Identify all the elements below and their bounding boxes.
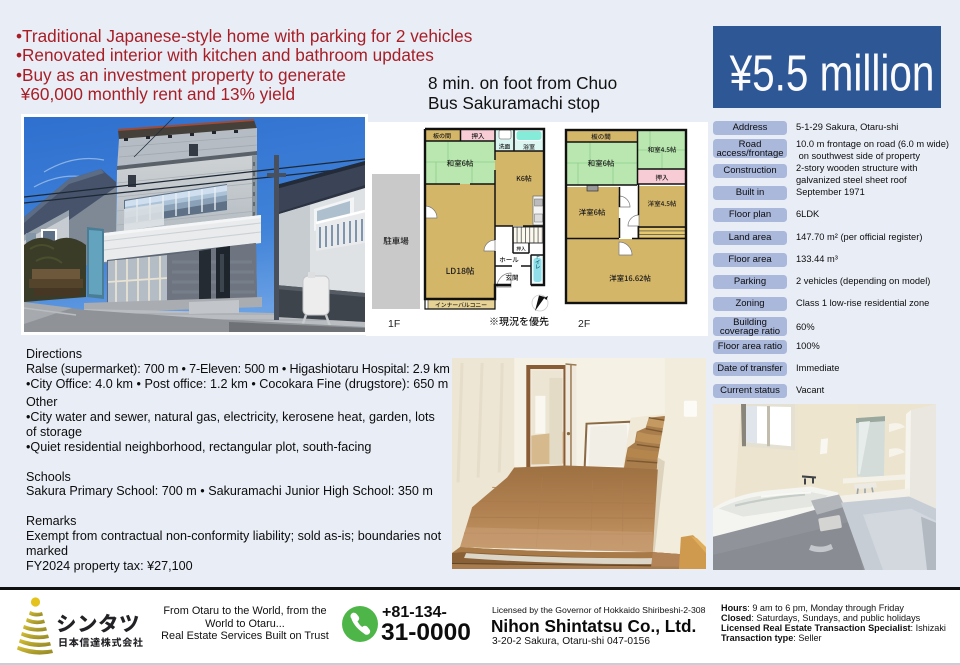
- svg-text:板の間: 板の間: [591, 131, 611, 141]
- svg-text:押入: 押入: [472, 131, 486, 141]
- svg-text:※現況を優先: ※現況を優先: [489, 313, 549, 328]
- svg-text:玄関: 玄関: [506, 272, 519, 282]
- svg-text:K6帖: K6帖: [516, 174, 532, 184]
- svg-text:洋室16.62帖: 洋室16.62帖: [609, 273, 651, 284]
- svg-text:和室4.5帖: 和室4.5帖: [648, 144, 677, 154]
- svg-text:インナーバルコニー: インナーバルコニー: [435, 300, 487, 309]
- svg-text:和室6帖: 和室6帖: [588, 158, 615, 169]
- svg-text:押入: 押入: [656, 172, 670, 182]
- svg-text:ホール: ホール: [499, 254, 519, 264]
- svg-text:LD18帖: LD18帖: [446, 265, 475, 277]
- svg-text:駐車場: 駐車場: [383, 235, 409, 247]
- svg-text:トイレ: トイレ: [534, 253, 542, 270]
- svg-text:2F: 2F: [578, 318, 590, 330]
- svg-text:板の間: 板の間: [433, 131, 451, 140]
- svg-text:1F: 1F: [388, 318, 400, 330]
- svg-text:和室6帖: 和室6帖: [447, 158, 474, 169]
- svg-text:洋室4.5帖: 洋室4.5帖: [648, 198, 677, 208]
- svg-text:押入: 押入: [516, 246, 526, 253]
- svg-text:浴室: 浴室: [523, 142, 535, 151]
- svg-text:洗面: 洗面: [499, 142, 511, 151]
- svg-text:洋室6帖: 洋室6帖: [579, 207, 606, 218]
